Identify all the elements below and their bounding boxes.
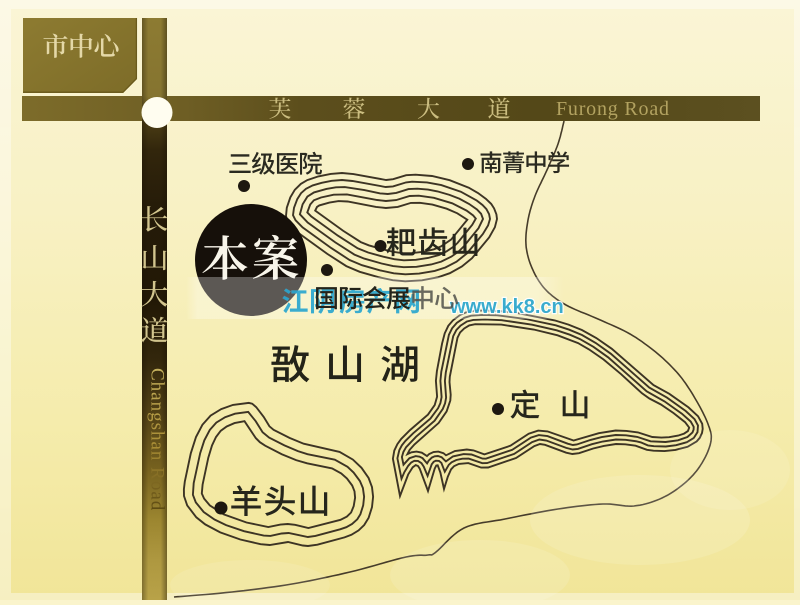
svg-text:Changshan Road: Changshan Road <box>147 368 168 511</box>
svg-text:Furong Road: Furong Road <box>556 98 670 120</box>
svg-text:www.kk8.cn: www.kk8.cn <box>449 296 564 318</box>
